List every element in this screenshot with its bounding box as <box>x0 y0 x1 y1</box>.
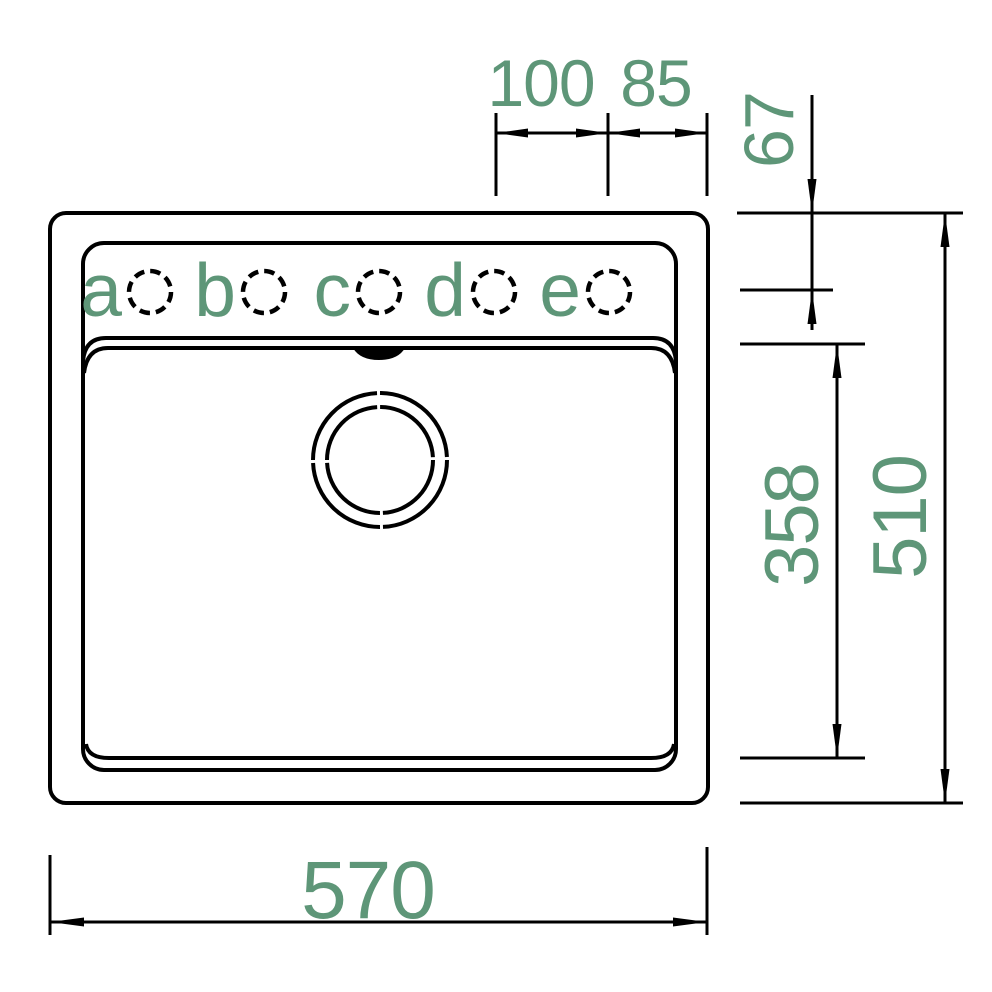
arrowhead-down <box>808 179 817 213</box>
arrowhead-up <box>941 213 950 247</box>
arrowhead-left <box>496 129 528 138</box>
tap-hole-label-c: c <box>314 248 352 332</box>
tap-hole-label-d: d <box>424 248 466 332</box>
tap-hole-circle-e <box>588 271 630 313</box>
dimension-label-358: 358 <box>750 463 835 587</box>
tap-hole-circle-c <box>358 271 400 313</box>
dimension-label-510: 510 <box>858 455 943 579</box>
arrowhead-left <box>608 129 640 138</box>
sink-body <box>50 213 708 803</box>
tap-hole-circle-a <box>129 271 171 313</box>
dimension-edge-to-hole-center: 67 <box>730 92 963 330</box>
drain <box>313 393 447 527</box>
tap-hole-circle-b <box>243 271 285 313</box>
dimension-label-100: 100 <box>487 46 594 120</box>
sink-outer-rim <box>50 213 708 803</box>
drawing-canvas: a b c d e 100 85 67 358 <box>0 0 992 992</box>
tap-holes: a b c d e <box>80 248 630 332</box>
tap-hole-label-a: a <box>80 248 122 332</box>
sink-technical-drawing: a b c d e 100 85 67 358 <box>0 0 992 992</box>
arrowhead-right <box>675 129 707 138</box>
dimension-bowl-depth: 358 <box>740 344 865 758</box>
tap-hole-label-e: e <box>539 248 581 332</box>
dimension-label-570: 570 <box>301 845 435 936</box>
arrowhead-up <box>833 344 842 378</box>
dimension-overall-width: 570 <box>50 845 707 936</box>
overflow-notch <box>353 348 405 360</box>
drain-inner-circle <box>327 407 433 513</box>
arrowhead-down <box>833 724 842 758</box>
bowl-bottom-radius-line <box>86 744 674 758</box>
dimension-hole-to-edge: 85 <box>608 46 707 196</box>
drain-outer-circle <box>313 393 447 527</box>
arrowhead-right <box>673 918 707 927</box>
sink-inner-rim <box>83 243 676 770</box>
tap-hole-circle-d <box>473 271 515 313</box>
arrowhead-down <box>941 769 950 803</box>
dimension-label-67: 67 <box>730 92 808 168</box>
arrowhead-up <box>808 290 817 324</box>
arrowhead-left <box>50 918 84 927</box>
dimension-hole-spacing: 100 <box>487 46 608 196</box>
arrowhead-right <box>576 129 608 138</box>
tap-hole-label-b: b <box>194 248 236 332</box>
dimension-label-85: 85 <box>620 46 691 120</box>
